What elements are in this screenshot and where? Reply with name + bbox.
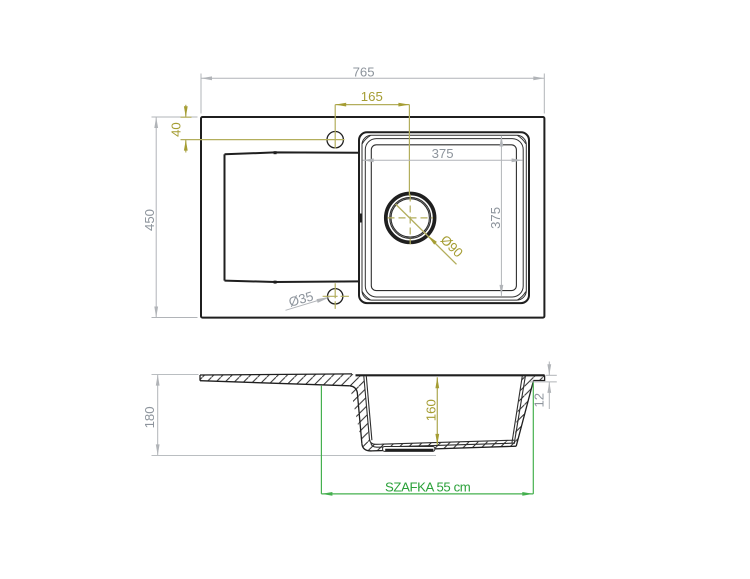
svg-text:165: 165 (361, 89, 383, 104)
svg-text:180: 180 (142, 406, 157, 428)
svg-text:160: 160 (424, 399, 439, 421)
svg-text:SZAFKA 55 cm: SZAFKA 55 cm (385, 479, 471, 494)
svg-text:765: 765 (353, 64, 375, 79)
svg-text:375: 375 (432, 146, 454, 161)
svg-text:40: 40 (168, 122, 183, 137)
svg-text:375: 375 (488, 207, 503, 229)
svg-text:450: 450 (142, 209, 157, 231)
